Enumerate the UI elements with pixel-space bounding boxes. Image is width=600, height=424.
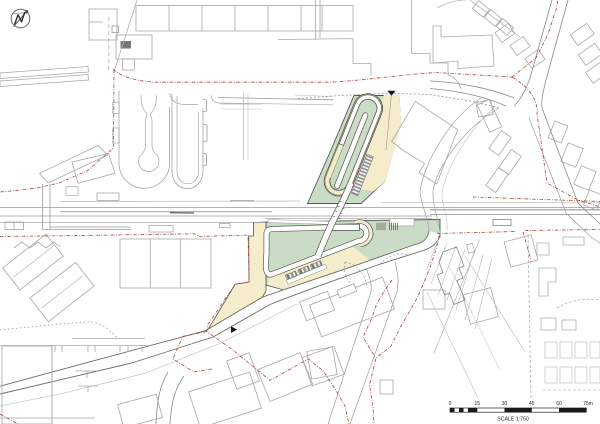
svg-text:15: 15 <box>475 401 481 407</box>
svg-text:75m: 75m <box>583 401 593 407</box>
svg-text:45: 45 <box>529 401 535 407</box>
svg-text:SCALE 1:750: SCALE 1:750 <box>497 417 529 423</box>
svg-text:0: 0 <box>449 401 452 407</box>
svg-text:30: 30 <box>502 401 508 407</box>
svg-text:60: 60 <box>556 401 562 407</box>
